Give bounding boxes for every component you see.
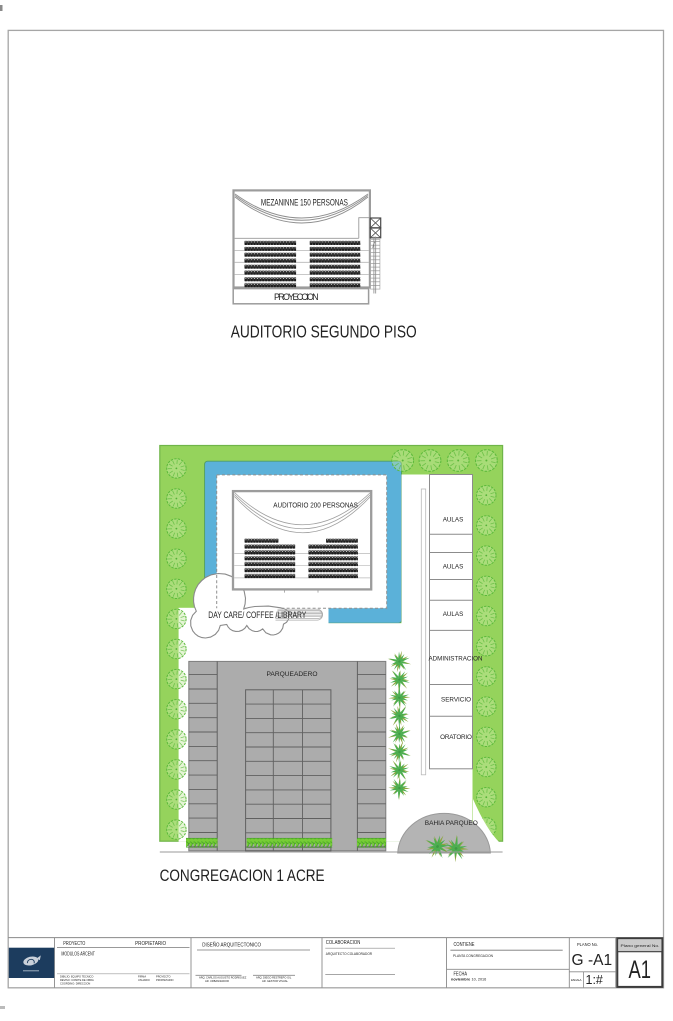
svg-text:SERVICIO: SERVICIO <box>441 697 471 704</box>
svg-text:PROYECCION: PROYECCION <box>274 292 319 302</box>
svg-text:A1: A1 <box>629 956 652 984</box>
svg-text:COLABORACION: COLABORACION <box>326 940 361 946</box>
svg-text:AULAS: AULAS <box>443 517 464 524</box>
svg-text:ESCALA: ESCALA <box>571 978 582 982</box>
svg-text:AULAS: AULAS <box>443 564 464 571</box>
svg-text:AULAS: AULAS <box>443 611 464 618</box>
svg-text:DAY CARE/ COFFEE /LIBRARY: DAY CARE/ COFFEE /LIBRARY <box>208 610 306 620</box>
svg-text:USUARIO: USUARIO <box>138 978 150 982</box>
svg-text:DIBUJO: EQUIPO TECNICO: DIBUJO: EQUIPO TECNICO <box>60 975 93 979</box>
svg-text:AUDITORIO 200 PERSONAS: AUDITORIO 200 PERSONAS <box>273 502 358 509</box>
svg-text:AUDITORIO SEGUNDO PISO: AUDITORIO SEGUNDO PISO <box>231 322 417 342</box>
svg-text:ORATORIO: ORATORIO <box>440 734 472 741</box>
svg-text:DISEÑO ARQUITECTONICO: DISEÑO ARQUITECTONICO <box>202 941 261 948</box>
svg-text:10, 2016: 10, 2016 <box>472 978 487 982</box>
svg-text:ARQUITECTO COLABORADOR: ARQUITECTO COLABORADOR <box>326 952 373 956</box>
svg-text:PROYECTO: PROYECTO <box>63 941 85 947</box>
svg-text:ADMINISTRACION: ADMINISTRACION <box>429 656 483 663</box>
svg-text:ARQ. CARLOS AUGUSTO RODRIGUEZ: ARQ. CARLOS AUGUSTO RODRIGUEZ <box>199 976 247 980</box>
svg-text:PROYECTO: PROYECTO <box>156 975 171 979</box>
svg-text:CONTIENE: CONTIENE <box>454 942 476 948</box>
svg-text:G: G <box>572 952 584 969</box>
svg-text:1:#: 1:# <box>586 973 603 987</box>
svg-text:PROPIETARIO: PROPIETARIO <box>156 978 174 982</box>
svg-text:PARQUEADERO: PARQUEADERO <box>267 671 318 678</box>
svg-text:FIRMA: FIRMA <box>138 975 146 979</box>
svg-text:MEZANINNE 150 PERSONAS: MEZANINNE 150 PERSONAS <box>261 197 348 207</box>
svg-text:Plano general No.: Plano general No. <box>621 944 660 948</box>
svg-text:PROPIETARIO: PROPIETARIO <box>135 941 166 947</box>
svg-text:REVISO: COMITE DE OBRA: REVISO: COMITE DE OBRA <box>60 978 94 982</box>
svg-text:COORDINO: DIRECCION: COORDINO: DIRECCION <box>60 982 90 986</box>
svg-text:AR. URBANIZADOR: AR. URBANIZADOR <box>205 979 229 983</box>
svg-text:ARQ. DIEGO RESTREPO GIL: ARQ. DIEGO RESTREPO GIL <box>256 976 292 980</box>
svg-text:AR. GESTOR VISUAL: AR. GESTOR VISUAL <box>262 979 288 983</box>
svg-text:PLANTA CONGREGACION: PLANTA CONGREGACION <box>453 954 494 958</box>
svg-text:CONGREGACION 1 ACRE: CONGREGACION 1 ACRE <box>160 866 325 885</box>
svg-text:-A1: -A1 <box>588 952 612 969</box>
svg-text:PLANO No.: PLANO No. <box>577 942 598 947</box>
svg-text:noviembre: noviembre <box>451 978 470 982</box>
svg-text:MODULOS ARCENT: MODULOS ARCENT <box>61 952 95 958</box>
svg-text:BAHIA PARQUEO: BAHIA PARQUEO <box>425 820 478 827</box>
